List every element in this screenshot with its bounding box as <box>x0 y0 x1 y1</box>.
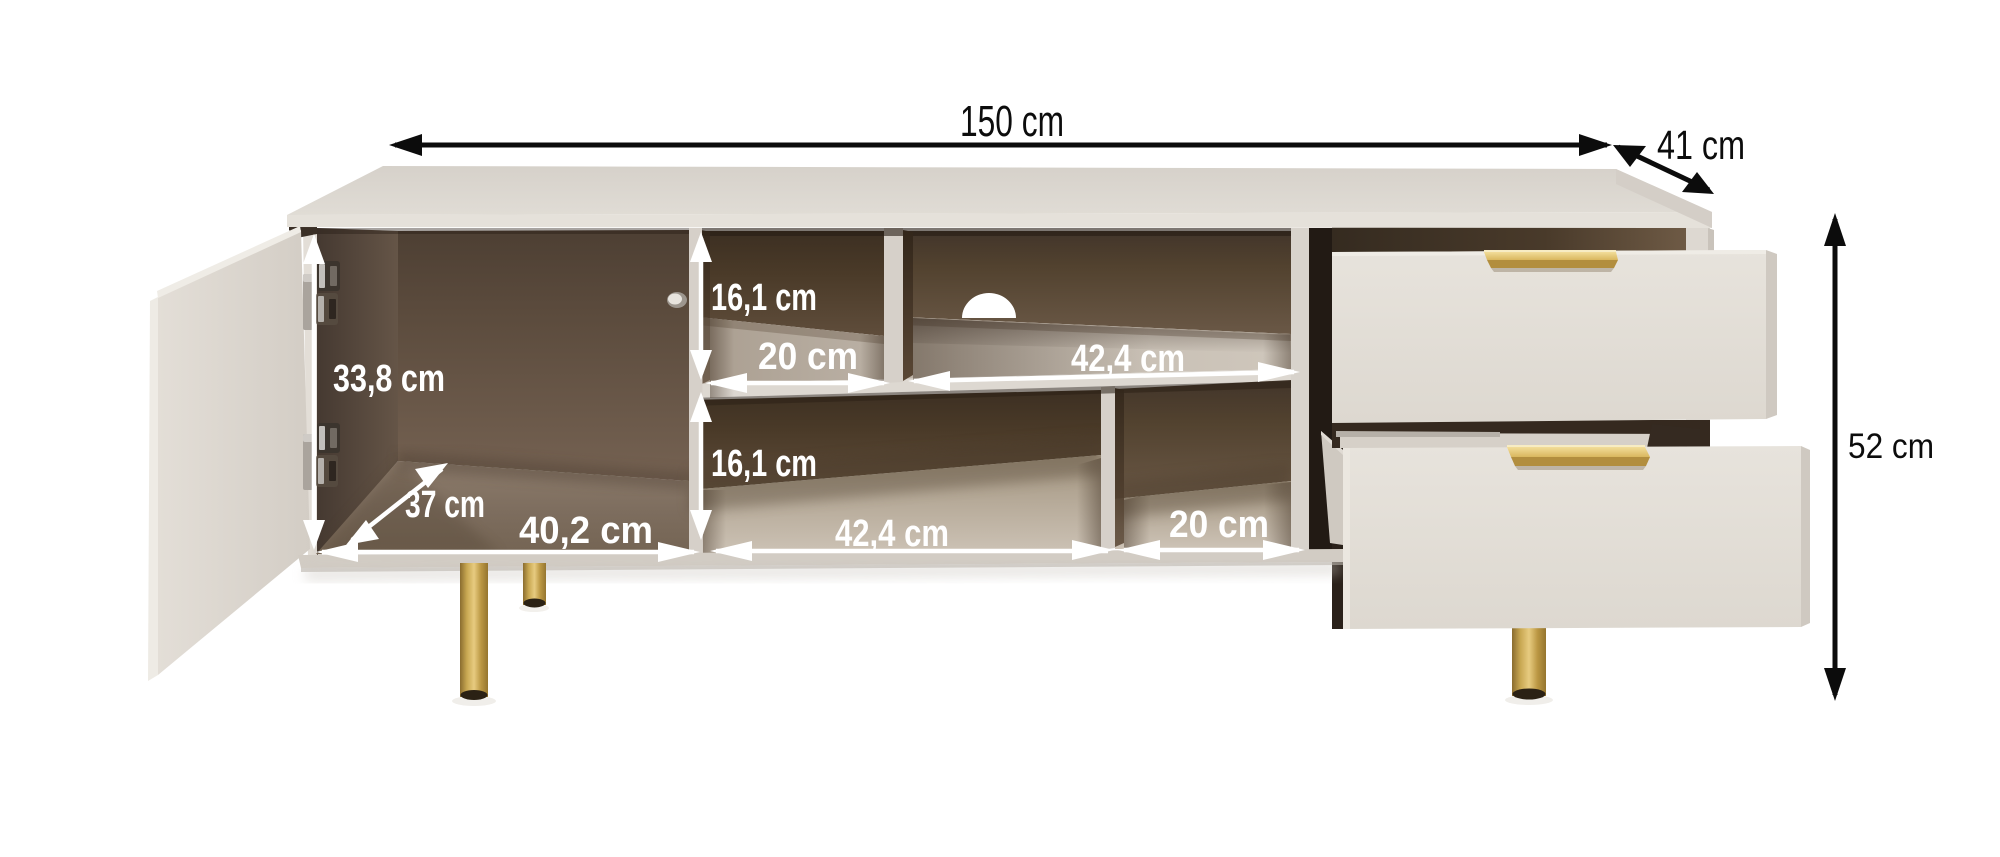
svg-text:42,4 cm: 42,4 cm <box>835 513 949 555</box>
svg-text:41 cm: 41 cm <box>1657 122 1745 168</box>
svg-text:33,8 cm: 33,8 cm <box>333 358 445 400</box>
svg-text:150 cm: 150 cm <box>960 97 1064 146</box>
svg-text:16,1 cm: 16,1 cm <box>711 443 817 485</box>
svg-text:20 cm: 20 cm <box>1169 504 1269 546</box>
svg-text:40,2 cm: 40,2 cm <box>519 510 653 552</box>
svg-text:20 cm: 20 cm <box>758 336 858 378</box>
svg-text:37 cm: 37 cm <box>405 484 485 526</box>
svg-text:52 cm: 52 cm <box>1848 427 1934 466</box>
svg-text:42,4 cm: 42,4 cm <box>1071 338 1185 380</box>
svg-text:16,1 cm: 16,1 cm <box>711 277 817 319</box>
